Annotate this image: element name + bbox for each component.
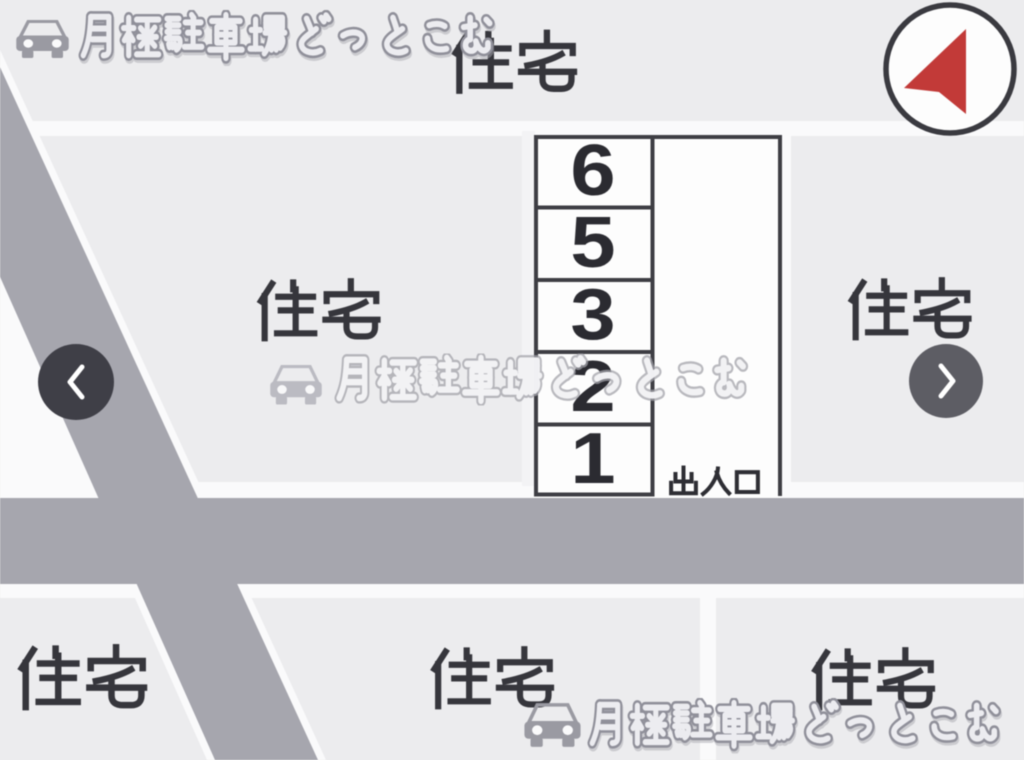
svg-text:3: 3 (570, 274, 615, 355)
svg-text:1: 1 (570, 418, 615, 499)
svg-text:6: 6 (570, 130, 615, 211)
svg-text:5: 5 (570, 202, 615, 283)
